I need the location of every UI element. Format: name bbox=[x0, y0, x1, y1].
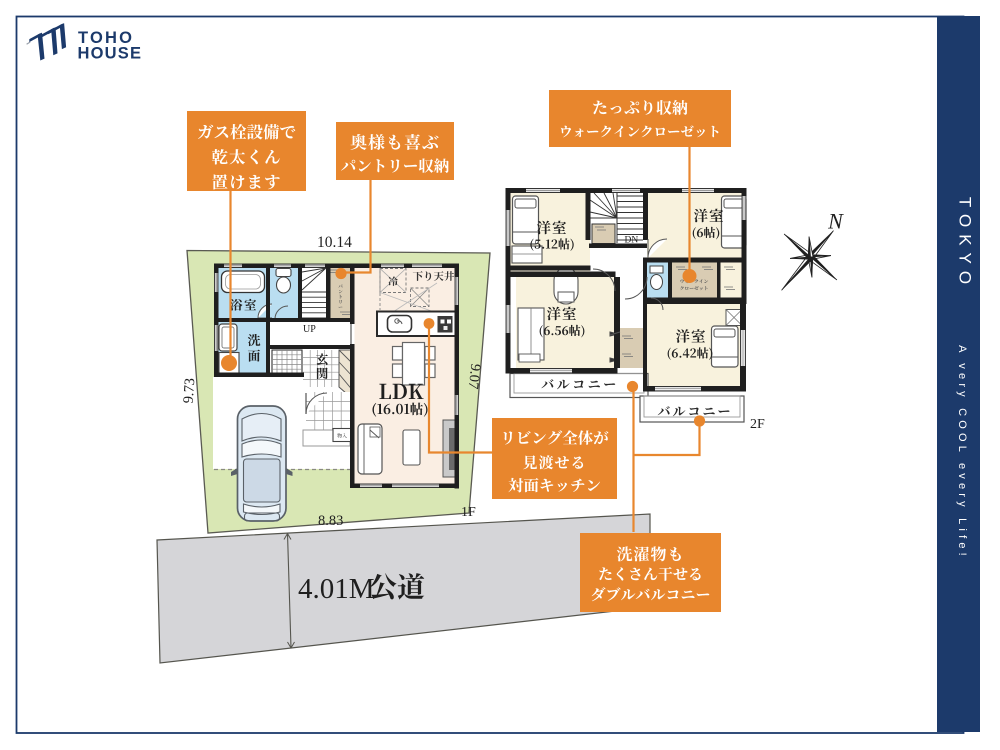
svg-text:8.83: 8.83 bbox=[318, 513, 343, 529]
svg-text:A very COOL every Life!: A very COOL every Life! bbox=[956, 345, 968, 560]
svg-text:UP: UP bbox=[303, 324, 316, 335]
svg-text:10.14: 10.14 bbox=[317, 234, 352, 251]
svg-text:9.73: 9.73 bbox=[181, 378, 199, 404]
svg-text:HOUSE: HOUSE bbox=[78, 45, 143, 63]
svg-text:N: N bbox=[827, 209, 844, 234]
svg-text:9.07: 9.07 bbox=[465, 363, 484, 390]
svg-text:1F: 1F bbox=[461, 505, 476, 520]
svg-text:TOKYO: TOKYO bbox=[956, 197, 975, 291]
svg-text:2F: 2F bbox=[750, 417, 765, 432]
svg-text:4.01M: 4.01M bbox=[298, 573, 375, 605]
